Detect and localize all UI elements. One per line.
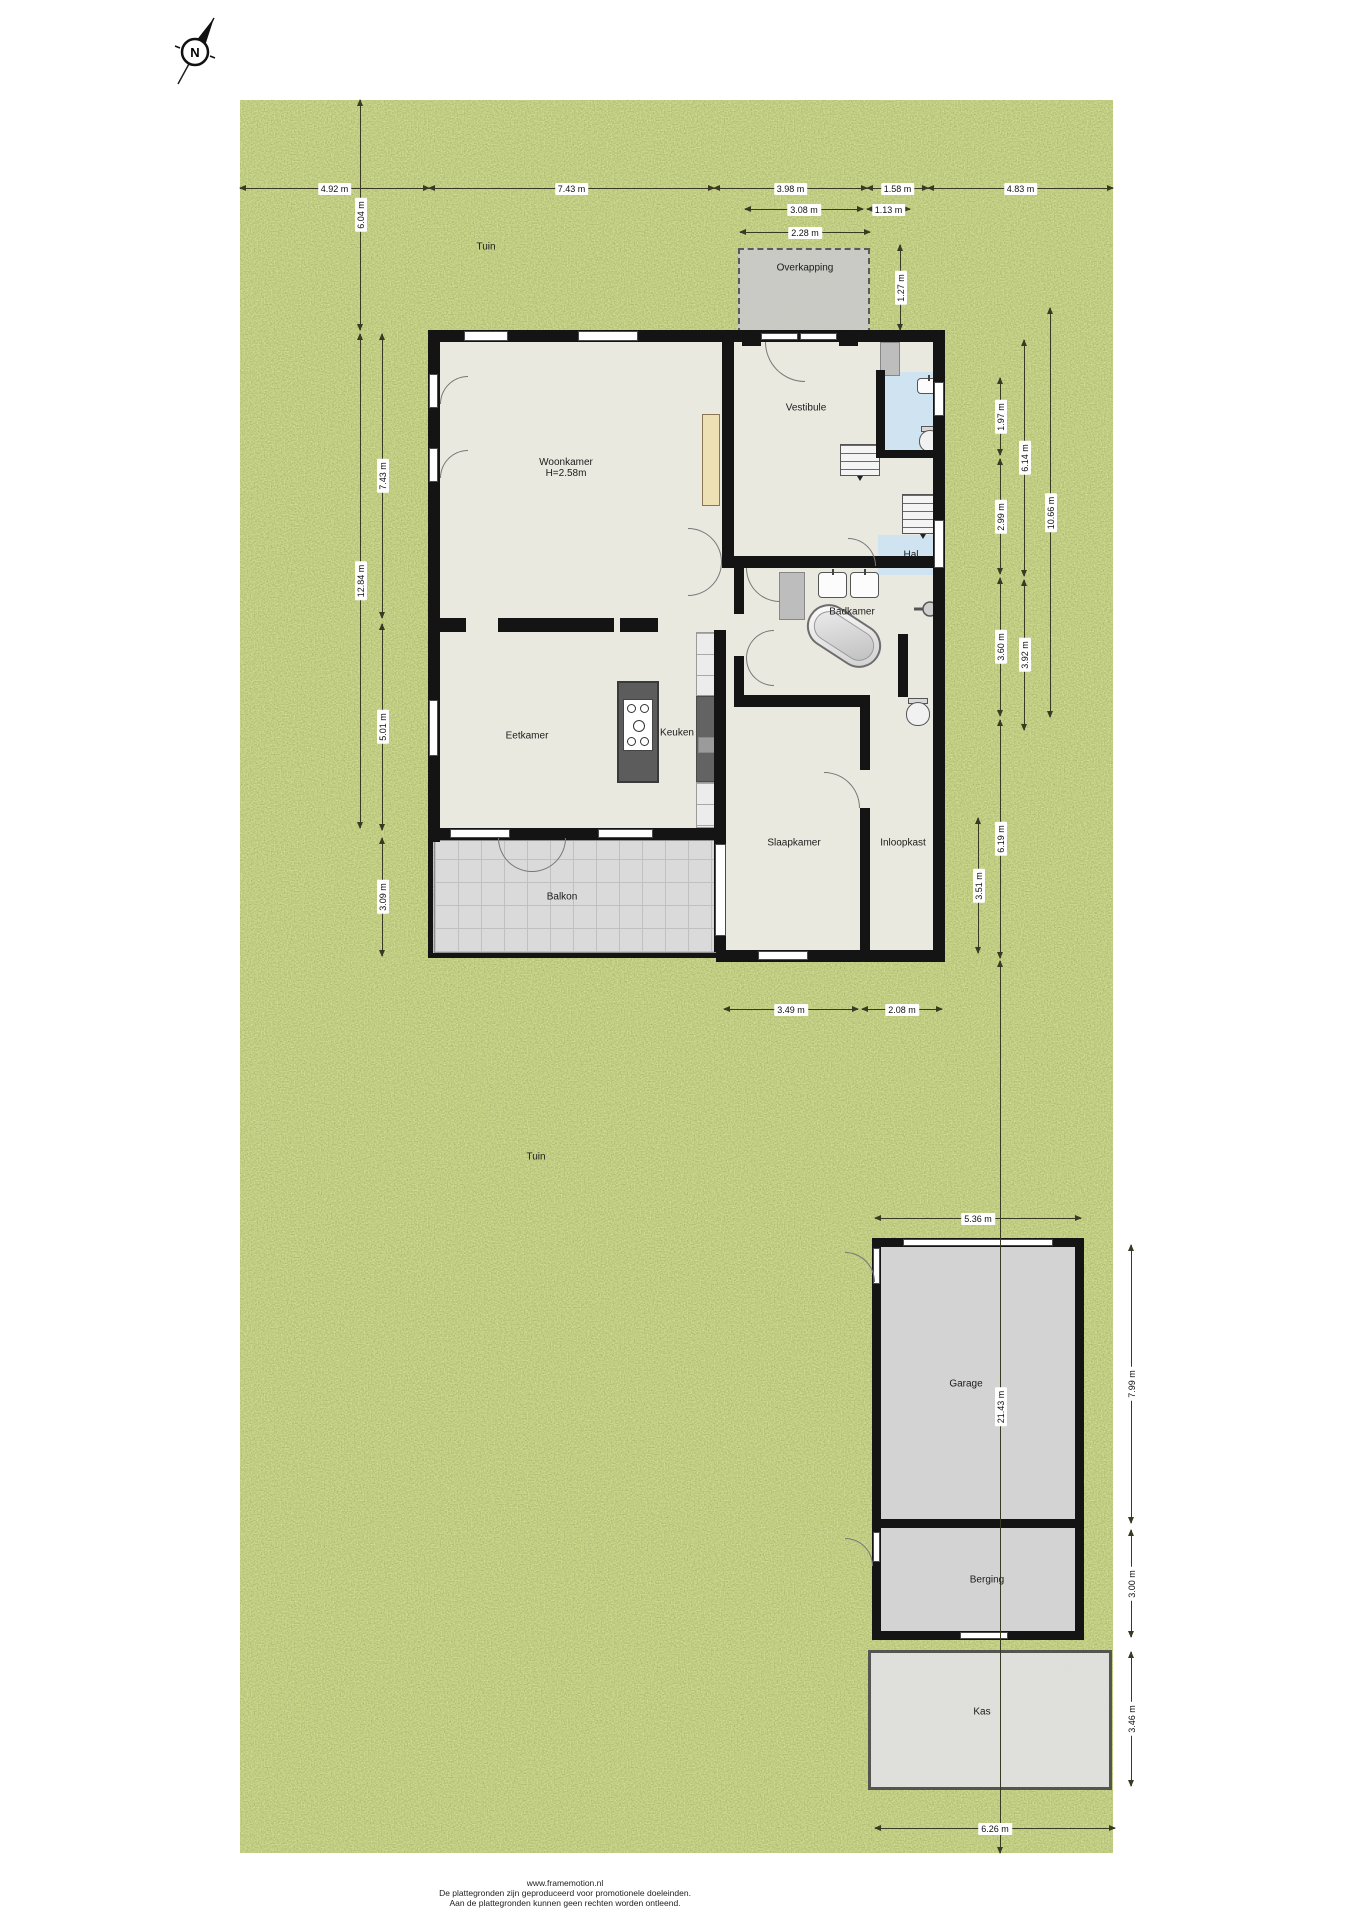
dimension-3.09m: 3.09 m — [382, 838, 383, 956]
window-dining-south-2 — [598, 829, 653, 838]
dimension-12.84m: 12.84 m — [360, 334, 361, 828]
window-entry-left — [761, 333, 798, 340]
room-label-slaapkamer: Slaapkamer — [767, 838, 820, 849]
wall-balcony-left — [428, 842, 433, 958]
footer: www.framemotion.nl De plattegronden zijn… — [0, 1878, 1130, 1908]
berging-side-door — [873, 1532, 880, 1562]
dimension-label: 5.36 m — [961, 1213, 995, 1225]
dimension-3.92m: 3.92 m — [1024, 580, 1025, 730]
dimension-label: 1.13 m — [872, 204, 906, 216]
room-label-woonkamer: WoonkamerH=2.58m — [539, 457, 593, 479]
room-label-tuin-zuid: Tuin — [526, 1152, 545, 1163]
window-entry-right — [800, 333, 837, 340]
room-label-vestibule: Vestibule — [786, 403, 827, 414]
dimension-1.58m: 1.58 m — [867, 188, 928, 189]
dimension-3.08m: 3.08 m — [745, 209, 863, 210]
dimension-7.99m: 7.99 m — [1131, 1245, 1132, 1523]
badkamer-sink-right — [850, 572, 879, 598]
dimension-label: 10.66 m — [1045, 493, 1057, 532]
dimension-label: 6.04 m — [355, 198, 367, 232]
dimension-label: 2.28 m — [788, 227, 822, 239]
wall-living-dining-3 — [620, 618, 658, 632]
dimension-4.83m: 4.83 m — [928, 188, 1113, 189]
dimension-label: 3.92 m — [1019, 638, 1031, 672]
wall-garage-berging-divider — [872, 1519, 1084, 1528]
footer-url: www.framemotion.nl — [0, 1878, 1130, 1888]
dimension-3.00m: 3.00 m — [1131, 1530, 1132, 1637]
room-label-overkapping: Overkapping — [777, 263, 834, 274]
dimension-6.04m: 6.04 m — [360, 100, 361, 330]
cabinet-woonkamer — [702, 414, 720, 506]
wall-entry-post-left — [742, 330, 761, 346]
dimension-3.51m: 3.51 m — [978, 818, 979, 953]
room-label-inloopkast: Inloopkast — [880, 838, 926, 849]
north-compass-icon: N — [165, 12, 227, 90]
overkapping-canopy — [738, 248, 870, 334]
window-dining-south-1 — [450, 829, 510, 838]
floorplan-page: N — [0, 0, 1358, 1920]
dimension-label: 3.98 m — [774, 183, 808, 195]
dimension-label: 12.84 m — [355, 562, 367, 601]
dimension-21.43m: 21.43 m — [1000, 961, 1001, 1853]
room-label-tuin-noord: Tuin — [476, 242, 495, 253]
dimension-label: 2.08 m — [885, 1004, 919, 1016]
dimension-5.36m: 5.36 m — [875, 1218, 1081, 1219]
window-bedroom-bottom — [758, 951, 808, 960]
dimension-label: 3.60 m — [995, 630, 1007, 664]
room-label-hal: Hal — [903, 550, 918, 561]
dimension-7.43m: 7.43 m — [382, 334, 383, 618]
room-label-keuken: Keuken — [660, 728, 694, 739]
footer-disclaimer-1: De plattegronden zijn geproduceerd voor … — [0, 1888, 1130, 1898]
dimension-4.92m: 4.92 m — [240, 188, 429, 189]
dimension-10.66m: 10.66 m — [1050, 308, 1051, 717]
dimension-label: 4.83 m — [1004, 183, 1038, 195]
dimension-2.99m: 2.99 m — [1000, 459, 1001, 574]
dimension-label: 1.27 m — [895, 271, 907, 305]
wall-living-dining-1 — [428, 618, 466, 632]
window-living-top-2 — [578, 331, 638, 341]
dimension-label: 1.58 m — [881, 183, 915, 195]
wall-entry-post-right — [839, 330, 858, 346]
cabinet-badkamer — [779, 572, 805, 620]
dimension-label: 7.99 m — [1126, 1367, 1138, 1401]
dimension-label: 2.99 m — [995, 500, 1007, 534]
room-label-garage: Garage — [949, 1379, 982, 1390]
dimension-label: 5.01 m — [377, 710, 389, 744]
dimension-6.26m: 6.26 m — [875, 1828, 1115, 1829]
window-dining-left — [429, 700, 438, 756]
dimension-2.08m: 2.08 m — [862, 1009, 942, 1010]
dimension-3.98m: 3.98 m — [714, 188, 867, 189]
stove — [623, 699, 653, 751]
dimension-3.49m: 3.49 m — [724, 1009, 858, 1010]
room-label-berging: Berging — [970, 1575, 1004, 1586]
floor-bedroom-wing — [720, 838, 940, 955]
dimension-label: 3.00 m — [1126, 1567, 1138, 1601]
wall-wc-bottom — [876, 450, 944, 458]
dimension-label: 21.43 m — [995, 1388, 1007, 1427]
window-living-top-1 — [464, 331, 508, 341]
wall-toilet-nook — [898, 634, 908, 697]
dimension-label: 6.14 m — [1019, 441, 1031, 475]
window-living-left-1 — [429, 374, 438, 408]
window-wc-right — [934, 382, 944, 416]
wall-living-vestibule — [722, 340, 734, 566]
dimension-label: 6.19 m — [995, 822, 1007, 856]
dimension-label: 3.49 m — [774, 1004, 808, 1016]
wall-outer-bottom — [716, 950, 945, 962]
badkamer-sink-left — [818, 572, 847, 598]
dimension-3.60m: 3.60 m — [1000, 578, 1001, 716]
dimension-1.27m: 1.27 m — [900, 245, 901, 330]
dimension-label: 4.92 m — [318, 183, 352, 195]
room-label-eetkamer: Eetkamer — [506, 731, 549, 742]
dimension-label: 7.43 m — [377, 459, 389, 493]
dimension-label: 3.46 m — [1126, 1702, 1138, 1736]
wall-living-dining-2 — [498, 618, 614, 632]
room-label-kas: Kas — [973, 1707, 990, 1718]
room-sublabel-woonkamer: H=2.58m — [539, 468, 593, 479]
dimension-label: 1.97 m — [995, 400, 1007, 434]
dimension-5.01m: 5.01 m — [382, 624, 383, 830]
garage-door — [903, 1239, 1053, 1246]
dimension-label: 3.51 m — [973, 869, 985, 903]
stairs-vestibule — [840, 444, 880, 476]
wall-bathroom-bottom — [734, 695, 870, 707]
compass-n-label: N — [190, 45, 199, 60]
dimension-3.46m: 3.46 m — [1131, 1652, 1132, 1786]
kas-greenhouse — [868, 1650, 1112, 1790]
dimension-6.19m: 6.19 m — [1000, 720, 1001, 958]
wall-bedroom-closet-2 — [860, 808, 870, 954]
wall-balcony-bottom — [428, 953, 721, 958]
dimension-6.14m: 6.14 m — [1024, 340, 1025, 576]
dimension-1.97m: 1.97 m — [1000, 378, 1001, 455]
footer-disclaimer-2: Aan de plattegronden kunnen geen rechten… — [0, 1898, 1130, 1908]
room-label-balkon: Balkon — [547, 892, 578, 903]
kitchen-appliance — [698, 737, 715, 753]
wall-bedroom-closet-1 — [860, 707, 870, 770]
window-bedroom-balcony — [715, 844, 726, 936]
wall-bathroom-left-1 — [734, 568, 744, 614]
window-hal-right — [934, 520, 944, 568]
dimension-2.28m: 2.28 m — [740, 232, 870, 233]
badkamer-toilet — [906, 698, 930, 726]
room-label-badkamer: Badkamer — [829, 607, 875, 618]
window-living-left-2 — [429, 448, 438, 482]
dimension-label: 3.09 m — [377, 880, 389, 914]
dimension-label: 7.43 m — [555, 183, 589, 195]
dimension-7.43m: 7.43 m — [429, 188, 714, 189]
dimension-1.13m: 1.13 m — [867, 209, 910, 210]
dimension-label: 6.26 m — [978, 1823, 1012, 1835]
dimension-label: 3.08 m — [787, 204, 821, 216]
wall-wc-left — [876, 370, 885, 454]
wall-outer-right — [933, 330, 945, 962]
